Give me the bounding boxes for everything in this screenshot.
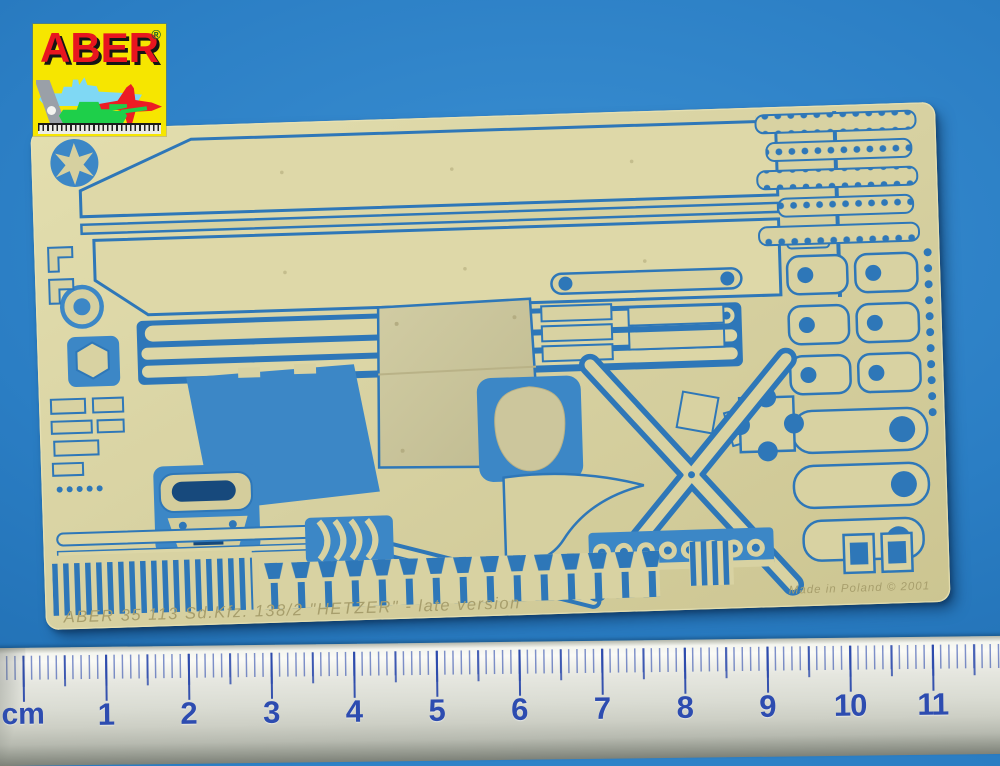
product-photo: { "photo": { "background_color": "#2b7ec… bbox=[0, 0, 1000, 753]
small-comb bbox=[689, 540, 734, 585]
mini-ruler-icon bbox=[38, 123, 161, 134]
etched-brass-fret: ABER 35 113 Sd.Kfz. 138/2 "HETZER" - lat… bbox=[30, 102, 950, 630]
ruler-number: 4 bbox=[346, 694, 363, 730]
ruler-number: 3 bbox=[263, 695, 280, 731]
ruler-number: 8 bbox=[676, 690, 693, 726]
fret-etch-drawing: ABER 35 113 Sd.Kfz. 138/2 "HETZER" - lat… bbox=[30, 102, 950, 630]
ruler: cm123456789101112 bbox=[0, 636, 1000, 766]
ruler-number: 1 bbox=[97, 697, 114, 733]
registered-mark: ® bbox=[151, 27, 161, 42]
aber-logo: ABER ® bbox=[33, 24, 166, 136]
brand-text: ABER bbox=[33, 26, 166, 70]
j-curve-fan bbox=[305, 515, 394, 564]
ruler-number: 11 bbox=[917, 687, 948, 723]
ruler-number: 9 bbox=[759, 689, 776, 725]
ruler-number: 5 bbox=[428, 693, 445, 729]
ruler-number: 10 bbox=[834, 688, 867, 724]
ruler-number: 7 bbox=[594, 691, 611, 727]
ruler-unit-label: cm bbox=[1, 698, 45, 733]
ruler-number: 6 bbox=[511, 692, 528, 728]
ruler-number: 2 bbox=[180, 696, 197, 732]
